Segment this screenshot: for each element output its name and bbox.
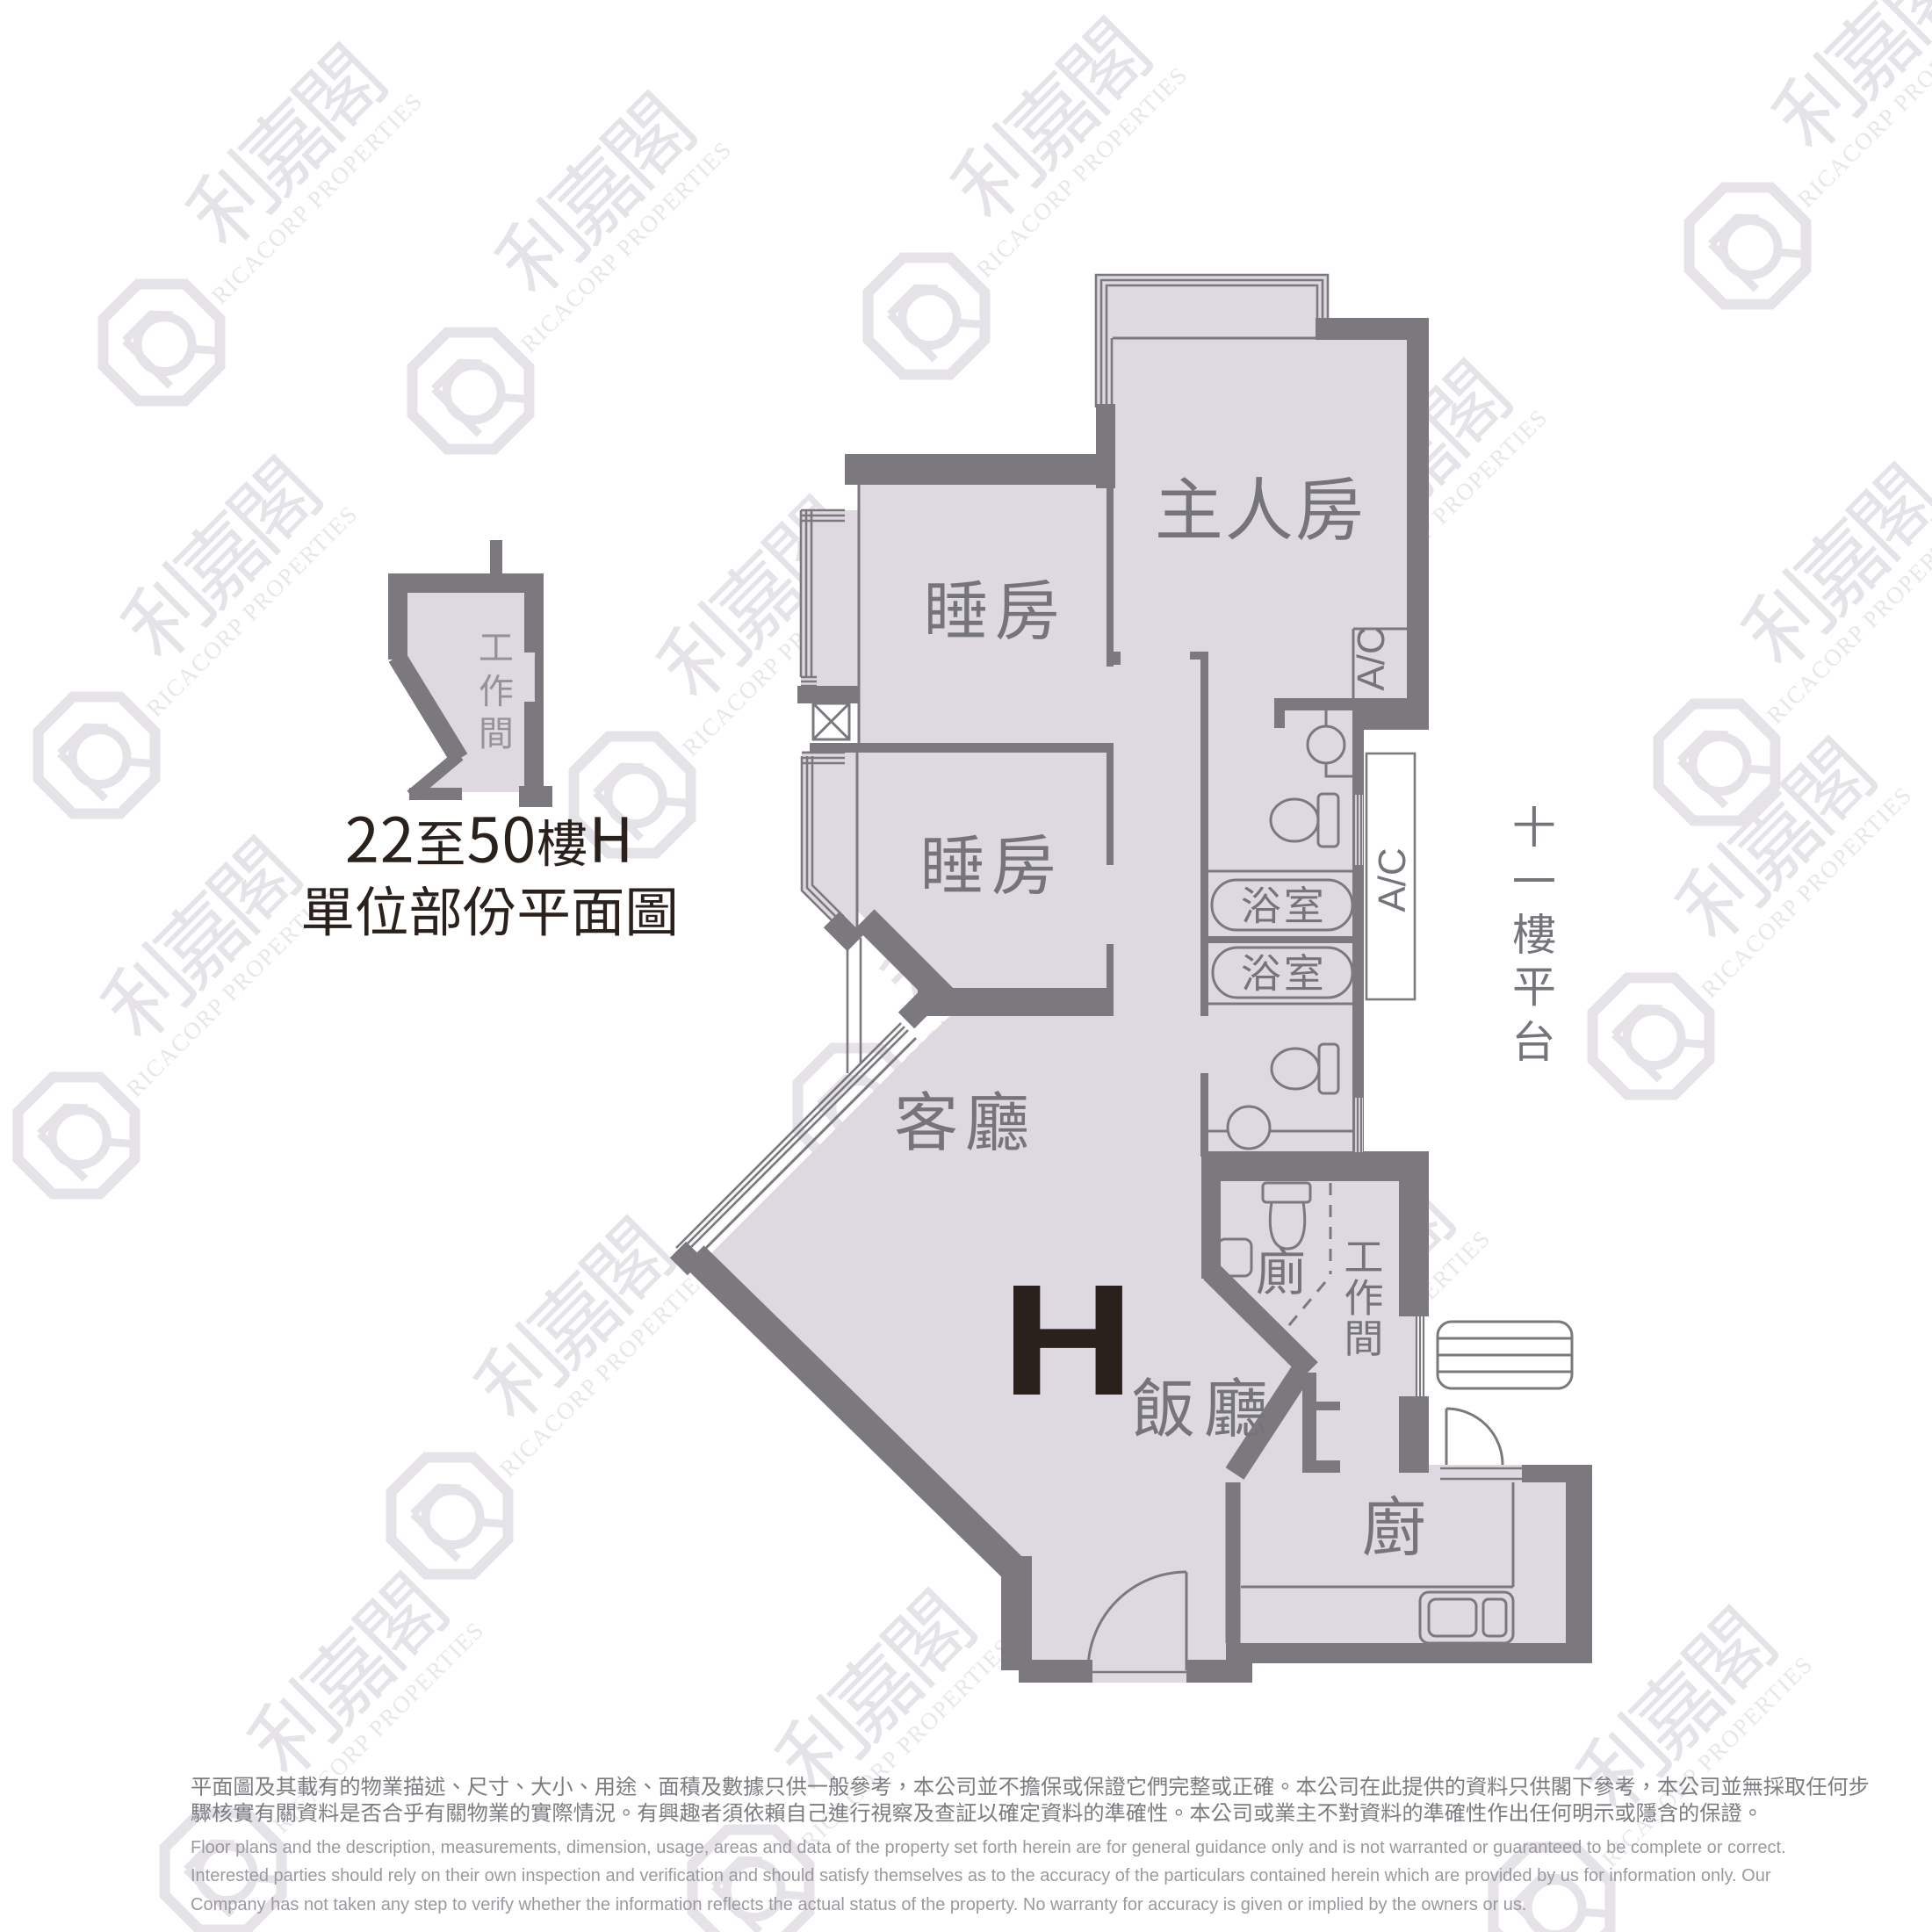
svg-text:Company has not taken any step: Company has not taken any step to verify… [191,1895,1526,1914]
svg-text:A/C: A/C [1371,847,1414,912]
svg-text:H: H [1001,1251,1135,1428]
svg-text:Interested parties should rely: Interested parties should rely on their … [191,1866,1771,1885]
svg-text:Floor plans and the descriptio: Floor plans and the description, measure… [191,1838,1786,1857]
svg-text:A/C: A/C [1350,626,1393,690]
